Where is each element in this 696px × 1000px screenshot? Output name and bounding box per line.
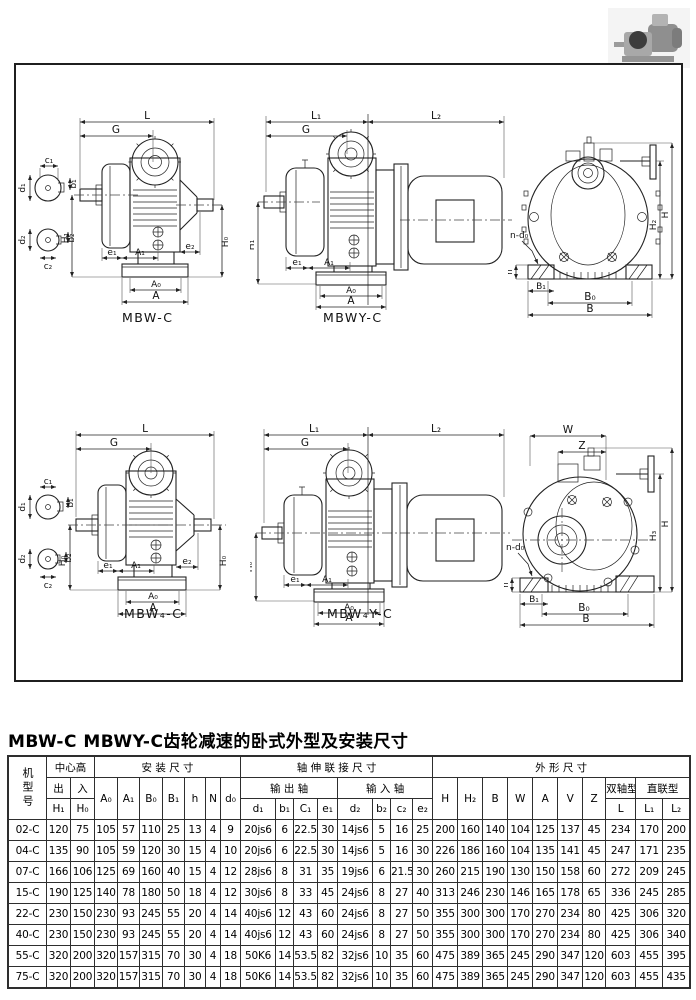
dim-label-B: B	[586, 303, 593, 315]
dim-label-e2: e₂	[185, 242, 195, 252]
caption-mbw-c: MBW-C	[122, 310, 174, 325]
dim-label-Z: Z	[578, 440, 585, 452]
value-cell: 140	[483, 820, 508, 841]
value-cell: 300	[458, 925, 483, 946]
value-cell: 45	[583, 820, 606, 841]
dim-label-e1: e₁	[290, 575, 300, 585]
value-cell: 60	[413, 967, 433, 988]
value-cell: 31	[294, 862, 318, 883]
value-cell: 40js6	[241, 925, 276, 946]
header-mounting: 安 装 尺 寸	[95, 757, 241, 778]
value-cell: 200	[433, 820, 458, 841]
dim-label-c1: c₁	[45, 156, 54, 166]
value-cell: 27	[391, 904, 413, 925]
dim-label-A1: A₁	[135, 248, 145, 258]
table-row: 55-C320200320157315703041850K61453.58232…	[9, 946, 690, 967]
value-cell: 14	[221, 904, 241, 925]
value-cell: 365	[483, 946, 508, 967]
value-cell: 120	[47, 820, 71, 841]
value-cell: 35	[391, 946, 413, 967]
header-input-shaft: 输 入 轴	[338, 778, 433, 799]
dimension-lines: L₁ L₂ G H₁ e₁ A₁ A₀ A	[250, 110, 504, 310]
value-cell: 300	[483, 925, 508, 946]
value-cell: 10	[221, 841, 241, 862]
header-B1: B₁	[163, 778, 185, 820]
value-cell: 272	[606, 862, 636, 883]
dimensions-table: 机型号 中心高 安 装 尺 寸 轴 伸 联 接 尺 寸 外 形 尺 寸 出 入 …	[8, 756, 690, 988]
value-cell: 320	[95, 946, 118, 967]
dim-label-h: h	[504, 582, 511, 588]
value-cell: 160	[483, 841, 508, 862]
dim-label-H3: H₃	[649, 530, 659, 541]
value-cell: 389	[458, 946, 483, 967]
header-H0: H₀	[71, 799, 95, 820]
value-cell: 15	[185, 862, 206, 883]
value-cell: 43	[294, 925, 318, 946]
dim-label-G: G	[302, 124, 310, 136]
header-W: W	[508, 778, 533, 820]
value-cell: 59	[118, 841, 140, 862]
value-cell: 20	[185, 925, 206, 946]
value-cell: 30	[185, 967, 206, 988]
value-cell: 290	[533, 967, 558, 988]
value-cell: 347	[558, 946, 583, 967]
value-cell: 347	[558, 967, 583, 988]
value-cell: 300	[483, 904, 508, 925]
value-cell: 90	[71, 841, 95, 862]
header-C1: C₁	[294, 799, 318, 820]
value-cell: 160	[458, 820, 483, 841]
model-cell: 40-C	[9, 925, 47, 946]
value-cell: 5	[373, 820, 391, 841]
value-cell: 82	[318, 967, 338, 988]
value-cell: 10	[373, 946, 391, 967]
value-cell: 200	[663, 820, 690, 841]
value-cell: 43	[294, 904, 318, 925]
shaft-section-details: c₁ b₁ d₁ c₂ b₂ d₂	[18, 477, 76, 591]
value-cell: 65	[583, 883, 606, 904]
drawing-mbw4-c-side-view: c₁ b₁ d₁ c₂ b₂ d₂ L	[18, 415, 250, 630]
value-cell: 45	[583, 841, 606, 862]
drawing-mbwy-c-side-view: L₁ L₂ G H₁ e₁ A₁ A₀ A	[250, 100, 515, 325]
value-cell: 125	[533, 820, 558, 841]
dim-label-G: G	[110, 437, 118, 449]
value-cell: 104	[508, 820, 533, 841]
value-cell: 30	[413, 841, 433, 862]
reducer-body	[68, 448, 226, 590]
value-cell: 80	[583, 925, 606, 946]
value-cell: 435	[663, 967, 690, 988]
value-cell: 190	[47, 883, 71, 904]
drawing-mbw-c-side-view: c₁ b₁ d₁ c₂ b₂ d₂ L	[18, 100, 250, 325]
value-cell: 455	[636, 946, 663, 967]
value-cell: 32js6	[338, 946, 373, 967]
value-cell: 30js6	[241, 883, 276, 904]
model-cell: 15-C	[9, 883, 47, 904]
dim-label-ndo: n-d₀	[510, 231, 529, 241]
header-d2: d₂	[338, 799, 373, 820]
value-cell: 355	[433, 925, 458, 946]
value-cell: 245	[663, 862, 690, 883]
value-cell: 9	[221, 820, 241, 841]
value-cell: 389	[458, 967, 483, 988]
value-cell: 14js6	[338, 820, 373, 841]
value-cell: 455	[636, 967, 663, 988]
value-cell: 14	[276, 967, 294, 988]
dim-label-H2: H₂	[649, 219, 659, 230]
value-cell: 306	[636, 904, 663, 925]
value-cell: 425	[606, 904, 636, 925]
value-cell: 245	[636, 883, 663, 904]
table-row: 22-C23015023093245552041440js612436024js…	[9, 904, 690, 925]
value-cell: 106	[71, 862, 95, 883]
value-cell: 33	[294, 883, 318, 904]
value-cell: 4	[206, 925, 221, 946]
value-cell: 60	[318, 925, 338, 946]
page-title: MBW-C MBWY-C齿轮减速的卧式外型及安装尺寸	[8, 727, 408, 752]
header-H: H	[433, 778, 458, 820]
value-cell: 30	[413, 862, 433, 883]
value-cell: 135	[47, 841, 71, 862]
value-cell: 104	[508, 841, 533, 862]
value-cell: 120	[583, 946, 606, 967]
header-h: h	[185, 778, 206, 820]
value-cell: 24js6	[338, 904, 373, 925]
value-cell: 28js6	[241, 862, 276, 883]
drawing-end-view-bottom: W Z n-d₀ h B₁ B₀ B H₃ H	[504, 420, 678, 635]
value-cell: 230	[95, 904, 118, 925]
value-cell: 20	[185, 904, 206, 925]
product-photo-gearmotor	[608, 8, 690, 68]
value-cell: 603	[606, 946, 636, 967]
value-cell: 313	[433, 883, 458, 904]
dim-label-d2: d₂	[18, 554, 28, 564]
header-dual-shaft-type: 双轴型	[606, 778, 636, 799]
value-cell: 50	[413, 904, 433, 925]
value-cell: 4	[206, 883, 221, 904]
table-row: 15-C19012514078180501841230js68334524js6…	[9, 883, 690, 904]
value-cell: 55	[163, 925, 185, 946]
value-cell: 20js6	[241, 841, 276, 862]
value-cell: 19js6	[338, 862, 373, 883]
value-cell: 80	[583, 904, 606, 925]
model-cell: 04-C	[9, 841, 47, 862]
value-cell: 135	[533, 841, 558, 862]
value-cell: 234	[606, 820, 636, 841]
value-cell: 186	[458, 841, 483, 862]
header-L: L	[606, 799, 636, 820]
dim-label-L: L	[142, 423, 148, 435]
value-cell: 32js6	[338, 967, 373, 988]
header-Z: Z	[583, 778, 606, 820]
value-cell: 178	[558, 883, 583, 904]
value-cell: 246	[458, 883, 483, 904]
value-cell: 15	[185, 841, 206, 862]
header-N: N	[206, 778, 221, 820]
value-cell: 290	[533, 946, 558, 967]
value-cell: 306	[636, 925, 663, 946]
value-cell: 70	[163, 946, 185, 967]
value-cell: 70	[163, 967, 185, 988]
value-cell: 30	[163, 841, 185, 862]
value-cell: 160	[140, 862, 163, 883]
value-cell: 5	[373, 841, 391, 862]
value-cell: 14js6	[338, 841, 373, 862]
value-cell: 12	[276, 925, 294, 946]
value-cell: 125	[71, 883, 95, 904]
value-cell: 40	[413, 883, 433, 904]
dim-label-A0: A₀	[148, 592, 158, 602]
value-cell: 53.5	[294, 946, 318, 967]
header-in: 入	[71, 778, 95, 799]
value-cell: 270	[533, 904, 558, 925]
value-cell: 27	[391, 883, 413, 904]
dim-label-H1: H₁	[61, 232, 71, 243]
header-e2: e₂	[413, 799, 433, 820]
dim-label-L1: L₁	[311, 110, 321, 122]
value-cell: 20js6	[241, 820, 276, 841]
caption-mbw4-c: MBW₄-C	[124, 606, 183, 621]
dim-label-e1: e₁	[107, 248, 117, 258]
value-cell: 14	[276, 946, 294, 967]
value-cell: 320	[95, 967, 118, 988]
header-direct-type: 直联型	[636, 778, 690, 799]
value-cell: 16	[391, 841, 413, 862]
header-H2: H₂	[458, 778, 483, 820]
value-cell: 35	[318, 862, 338, 883]
value-cell: 157	[118, 967, 140, 988]
value-cell: 157	[118, 946, 140, 967]
value-cell: 150	[71, 904, 95, 925]
value-cell: 24js6	[338, 883, 373, 904]
value-cell: 300	[458, 904, 483, 925]
value-cell: 22.5	[294, 820, 318, 841]
header-A: A	[533, 778, 558, 820]
model-cell: 75-C	[9, 967, 47, 988]
dim-label-H: H	[661, 521, 671, 528]
header-center-height: 中心高	[47, 757, 95, 778]
value-cell: 82	[318, 946, 338, 967]
value-cell: 234	[558, 904, 583, 925]
header-H1: H₁	[47, 799, 71, 820]
value-cell: 6	[373, 862, 391, 883]
value-cell: 50K6	[241, 946, 276, 967]
value-cell: 4	[206, 946, 221, 967]
value-cell: 247	[606, 841, 636, 862]
value-cell: 16	[391, 820, 413, 841]
dim-label-B: B	[582, 613, 589, 625]
dim-label-d1: d₁	[18, 183, 28, 193]
dim-label-b1: b₁	[66, 498, 76, 508]
header-d0: d₀	[221, 778, 241, 820]
value-cell: 215	[458, 862, 483, 883]
dim-label-d2: d₂	[18, 235, 28, 245]
value-cell: 57	[118, 820, 140, 841]
header-b2: b₂	[373, 799, 391, 820]
value-cell: 13	[185, 820, 206, 841]
value-cell: 245	[508, 946, 533, 967]
header-B0: B₀	[140, 778, 163, 820]
value-cell: 45	[318, 883, 338, 904]
value-cell: 14	[221, 925, 241, 946]
drawing-mbw4y-c-side-view: L₁ L₂ G H₀ e₁ A₁ A₀ A	[250, 415, 515, 630]
value-cell: 141	[558, 841, 583, 862]
table-row: 75-C320200320157315703041850K61453.58232…	[9, 967, 690, 988]
value-cell: 75	[71, 820, 95, 841]
value-cell: 8	[373, 925, 391, 946]
value-cell: 270	[533, 925, 558, 946]
table-body: 02-C120751055711025134920js6622.53014js6…	[9, 820, 690, 988]
value-cell: 110	[140, 820, 163, 841]
value-cell: 170	[636, 820, 663, 841]
shaft-section-details: c₁ b₁ d₁ c₂ b₂ d₂	[18, 156, 79, 272]
value-cell: 24js6	[338, 925, 373, 946]
dim-label-d1: d₁	[18, 502, 28, 512]
value-cell: 25	[413, 820, 433, 841]
value-cell: 12	[276, 904, 294, 925]
dimension-lines: L G H₁ H₀ e₁ A₁ e₂ A₀ A	[61, 110, 231, 305]
dim-label-A1: A₁	[324, 258, 334, 268]
value-cell: 27	[391, 925, 413, 946]
caption-mbwy-c: MBWY-C	[323, 310, 383, 325]
value-cell: 4	[206, 820, 221, 841]
value-cell: 30	[318, 841, 338, 862]
dim-label-c2: c₂	[44, 262, 53, 272]
header-model: 机型号	[9, 757, 47, 820]
value-cell: 475	[433, 967, 458, 988]
model-cell: 02-C	[9, 820, 47, 841]
value-cell: 8	[276, 883, 294, 904]
value-cell: 12	[221, 883, 241, 904]
value-cell: 209	[636, 862, 663, 883]
value-cell: 226	[433, 841, 458, 862]
value-cell: 150	[533, 862, 558, 883]
dim-label-H0-left: H₀	[58, 555, 68, 566]
value-cell: 30	[185, 946, 206, 967]
reducer-body	[74, 136, 224, 277]
value-cell: 50K6	[241, 967, 276, 988]
value-cell: 200	[71, 946, 95, 967]
dim-label-e1: e₁	[292, 258, 302, 268]
value-cell: 30	[318, 820, 338, 841]
value-cell: 315	[140, 967, 163, 988]
value-cell: 22.5	[294, 841, 318, 862]
value-cell: 190	[483, 862, 508, 883]
value-cell: 320	[47, 967, 71, 988]
header-outline: 外 形 尺 寸	[433, 757, 690, 778]
value-cell: 260	[433, 862, 458, 883]
value-cell: 171	[636, 841, 663, 862]
header-A0: A₀	[95, 778, 118, 820]
value-cell: 120	[583, 967, 606, 988]
value-cell: 4	[206, 862, 221, 883]
header-V: V	[558, 778, 583, 820]
value-cell: 230	[47, 904, 71, 925]
header-L2: L₂	[663, 799, 690, 820]
value-cell: 230	[47, 925, 71, 946]
dim-label-B0: B₀	[584, 291, 595, 303]
value-cell: 365	[483, 967, 508, 988]
value-cell: 4	[206, 904, 221, 925]
value-cell: 25	[163, 820, 185, 841]
value-cell: 40js6	[241, 904, 276, 925]
dim-label-L1: L₁	[309, 423, 319, 435]
value-cell: 4	[206, 967, 221, 988]
value-cell: 355	[433, 904, 458, 925]
table-row: 07-C16610612569160401541228js68313519js6…	[9, 862, 690, 883]
housing-outline	[522, 137, 662, 279]
value-cell: 130	[508, 862, 533, 883]
header-shaft-connection: 轴 伸 联 接 尺 寸	[241, 757, 433, 778]
dimension-lines: L₁ L₂ G H₀ e₁ A₁ A₀ A	[250, 423, 504, 627]
value-cell: 55	[163, 904, 185, 925]
table-row: 40-C23015023093245552041440js612436024js…	[9, 925, 690, 946]
value-cell: 18	[221, 946, 241, 967]
value-cell: 234	[558, 925, 583, 946]
value-cell: 40	[163, 862, 185, 883]
value-cell: 285	[663, 883, 690, 904]
value-cell: 120	[140, 841, 163, 862]
caption-mbw4y-c: MBW₄Y-C	[327, 606, 393, 621]
model-cell: 55-C	[9, 946, 47, 967]
value-cell: 50	[163, 883, 185, 904]
dim-label-c1: c₁	[44, 477, 53, 487]
header-out: 出	[47, 778, 71, 799]
dim-label-A1: A₁	[131, 561, 141, 571]
header-B: B	[483, 778, 508, 820]
value-cell: 150	[71, 925, 95, 946]
dim-label-A: A	[152, 290, 160, 302]
value-cell: 475	[433, 946, 458, 967]
value-cell: 146	[508, 883, 533, 904]
dim-label-H: H	[661, 212, 671, 219]
table-row: 02-C120751055711025134920js6622.53014js6…	[9, 820, 690, 841]
dim-label-L2: L₂	[431, 423, 441, 435]
header-e1: e₁	[318, 799, 338, 820]
dim-label-A: A	[347, 295, 355, 307]
header-A1: A₁	[118, 778, 140, 820]
dim-label-c2: c₂	[44, 581, 53, 591]
catalog-page: c₁ b₁ d₁ c₂ b₂ d₂ L	[0, 0, 696, 1000]
header-output-shaft: 输 出 轴	[241, 778, 338, 799]
value-cell: 320	[663, 904, 690, 925]
header-c2: c₂	[391, 799, 413, 820]
value-cell: 170	[508, 904, 533, 925]
dim-label-A0: A₀	[151, 280, 161, 290]
value-cell: 320	[47, 946, 71, 967]
value-cell: 60	[583, 862, 606, 883]
value-cell: 230	[95, 925, 118, 946]
dim-label-G: G	[112, 124, 120, 136]
model-cell: 07-C	[9, 862, 47, 883]
value-cell: 93	[118, 925, 140, 946]
value-cell: 395	[663, 946, 690, 967]
value-cell: 315	[140, 946, 163, 967]
dim-label-L2: L₂	[431, 110, 441, 122]
value-cell: 35	[391, 967, 413, 988]
value-cell: 10	[373, 967, 391, 988]
value-cell: 245	[508, 967, 533, 988]
value-cell: 18	[185, 883, 206, 904]
value-cell: 8	[276, 862, 294, 883]
value-cell: 340	[663, 925, 690, 946]
value-cell: 78	[118, 883, 140, 904]
model-cell: 22-C	[9, 904, 47, 925]
value-cell: 158	[558, 862, 583, 883]
dim-label-h: h	[508, 269, 515, 275]
value-cell: 125	[95, 862, 118, 883]
dim-label-H1: H₁	[250, 239, 257, 250]
